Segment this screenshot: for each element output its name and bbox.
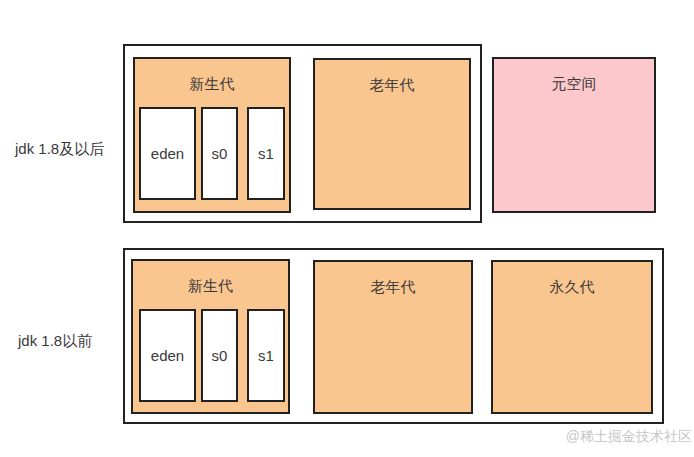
old-gen-box: 老年代	[313, 260, 473, 414]
heap-outer-box-jdk18-before: 新生代 eden s0 s1 老年代 永久代	[123, 248, 664, 424]
perm-gen-label: 永久代	[493, 262, 651, 297]
old-gen-label: 老年代	[315, 262, 471, 297]
perm-gen-box: 永久代	[491, 260, 653, 414]
watermark: @稀土掘金技术社区	[566, 428, 692, 446]
s0-box: s0	[201, 107, 238, 200]
row-label-jdk18-before: jdk 1.8以前	[18, 332, 92, 351]
young-gen-label: 新生代	[133, 261, 288, 296]
old-gen-label: 老年代	[315, 60, 469, 95]
old-gen-box: 老年代	[313, 58, 471, 210]
eden-box: eden	[139, 309, 196, 402]
heap-outer-box-jdk18-after: 新生代 eden s0 s1 老年代	[123, 44, 482, 223]
s1-box: s1	[247, 309, 285, 402]
young-gen-box: 新生代 eden s0 s1	[131, 259, 290, 414]
young-gen-box: 新生代 eden s0 s1	[133, 57, 291, 213]
young-gen-label: 新生代	[135, 59, 289, 94]
s1-box: s1	[247, 107, 285, 200]
s0-box: s0	[201, 309, 238, 402]
row-label-jdk18-after: jdk 1.8及以后	[15, 140, 104, 159]
metaspace-box: 元空间	[492, 57, 656, 213]
jvm-memory-diagram: jdk 1.8及以后 新生代 eden s0 s1 老年代 元空间 jdk 1.…	[0, 0, 694, 457]
eden-box: eden	[139, 107, 196, 200]
metaspace-label: 元空间	[494, 59, 654, 94]
